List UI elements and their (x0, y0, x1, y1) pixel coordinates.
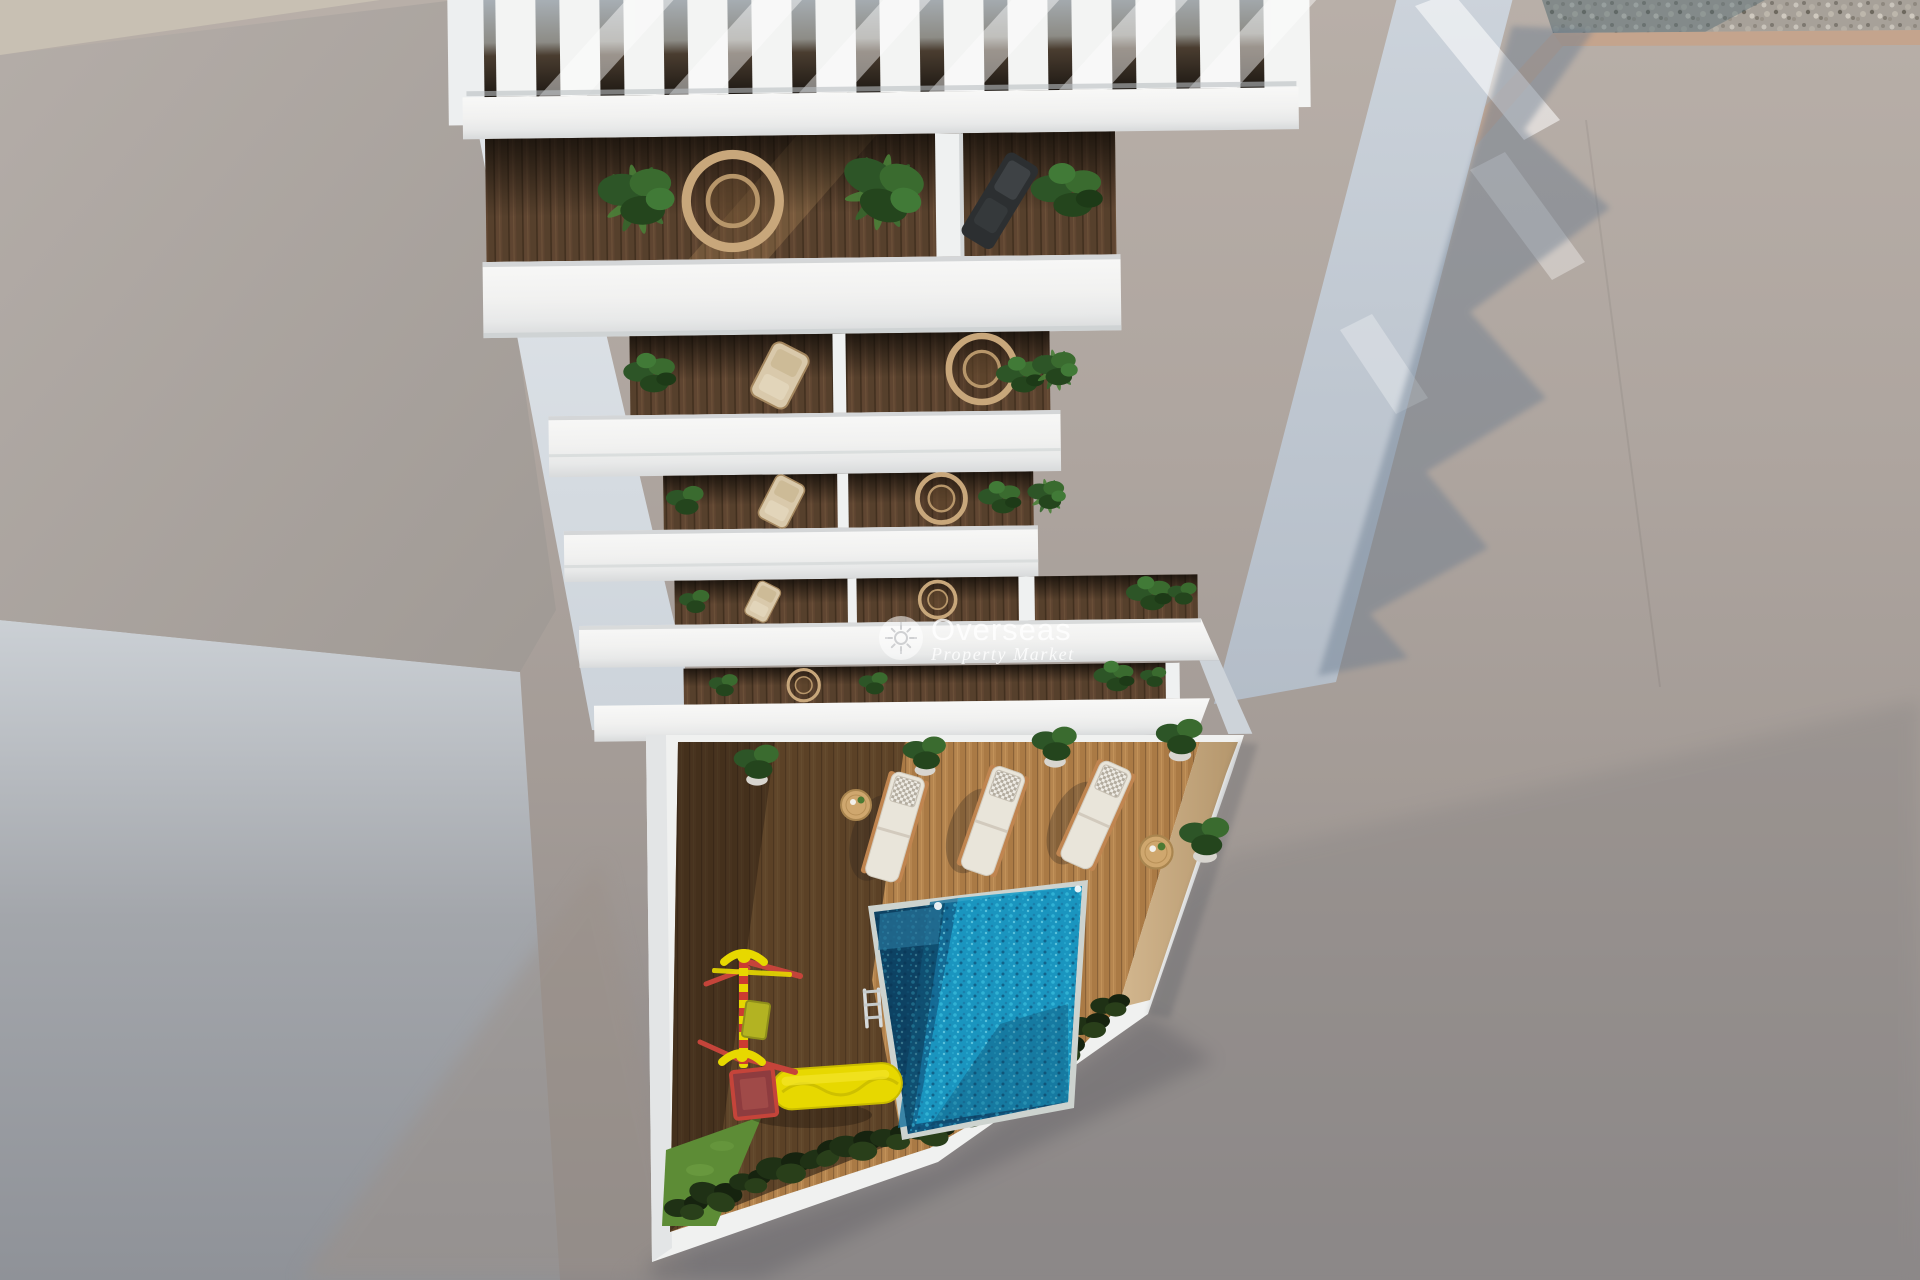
pool-light (934, 902, 942, 910)
side-table (1140, 836, 1173, 869)
swimming-pool (863, 880, 1088, 1140)
play-seat (742, 1001, 771, 1040)
pool-light (1075, 886, 1082, 893)
parapet-2 (548, 410, 1061, 477)
roof-pergola (447, 0, 1330, 139)
scene-aerial-render: Overseas Property Market (0, 0, 1920, 1280)
balcony-3 (663, 471, 1034, 530)
slide-platform (731, 1068, 778, 1119)
parapet-1 (483, 254, 1122, 338)
aerial-render-graphic (0, 0, 1920, 1280)
side-table (841, 790, 871, 820)
